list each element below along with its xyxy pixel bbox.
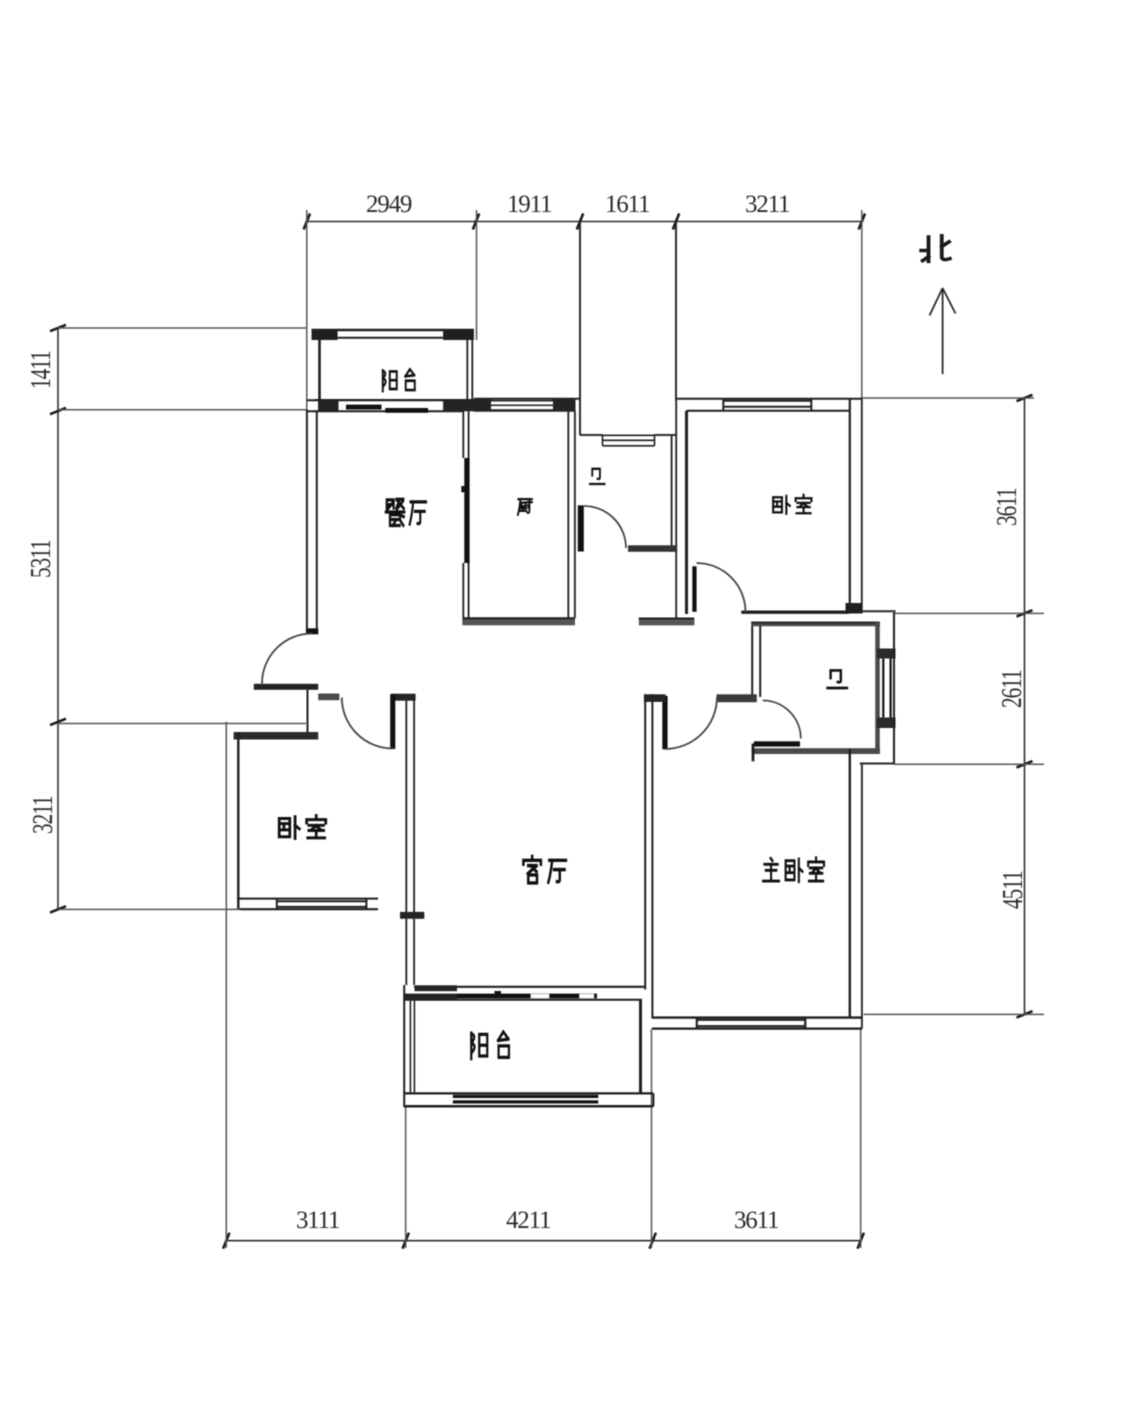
svg-text:3111: 3111 xyxy=(296,1207,339,1234)
svg-text:4511: 4511 xyxy=(997,871,1029,909)
svg-text:3611: 3611 xyxy=(734,1207,778,1234)
svg-text:1911: 1911 xyxy=(507,191,551,218)
svg-text:4211: 4211 xyxy=(506,1207,550,1234)
svg-text:3211: 3211 xyxy=(27,796,59,834)
svg-text:3211: 3211 xyxy=(745,191,789,218)
svg-text:2611: 2611 xyxy=(996,670,1028,708)
svg-text:1411: 1411 xyxy=(25,351,57,389)
svg-text:5311: 5311 xyxy=(25,540,57,578)
svg-text:3611: 3611 xyxy=(991,488,1023,526)
svg-text:2949: 2949 xyxy=(366,191,412,218)
svg-text:1611: 1611 xyxy=(605,191,649,218)
